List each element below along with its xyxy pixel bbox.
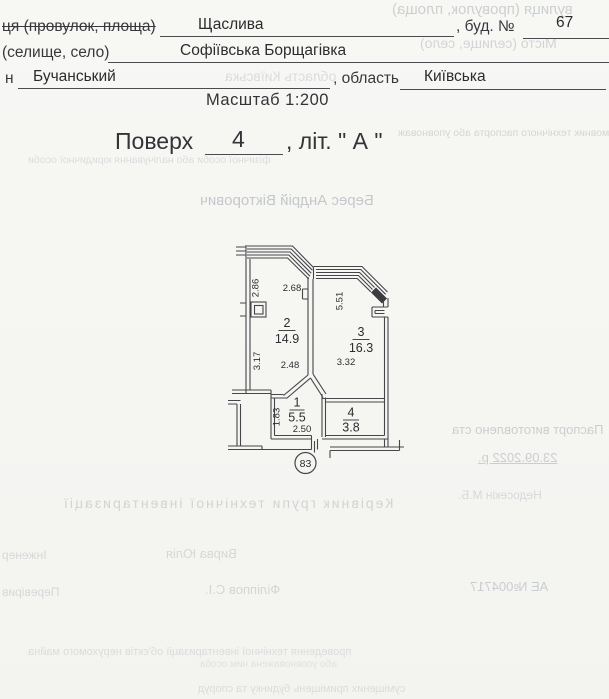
room-2-area: 14.9 (275, 332, 299, 346)
dim-3-17: 3.17 (252, 352, 263, 371)
shaft-column (251, 302, 266, 317)
floor-plan: 2 14.9 3 16.3 1 5.5 4 3.8 2.86 2.68 5.51… (0, 0, 609, 699)
room-3-area: 16.3 (349, 341, 373, 355)
shaft-column-inner (255, 306, 264, 315)
room-3-number: 3 (358, 325, 365, 339)
room-4-area: 3.8 (342, 421, 359, 435)
dim-2-48: 2.48 (281, 360, 300, 371)
room-1-area: 5.5 (288, 411, 305, 425)
dim-1-83: 1.83 (272, 408, 283, 427)
dim-3-32: 3.32 (337, 357, 356, 368)
scanned-floorplan-page: { "form": { "line1": { "label": "ця (про… (0, 0, 609, 699)
room-1-number: 1 (294, 396, 301, 410)
walls (228, 245, 404, 458)
solid-wall-wedge (371, 288, 387, 304)
dim-2-68: 2.68 (283, 283, 302, 294)
dim-5-51: 5.51 (335, 292, 346, 311)
room-4-number: 4 (348, 406, 355, 420)
room-2-number: 2 (284, 316, 291, 330)
dim-2-86: 2.86 (251, 279, 262, 298)
apartment-number: 83 (300, 458, 312, 470)
dim-2-50: 2.50 (293, 424, 312, 435)
window-wall-room2 (247, 246, 314, 279)
